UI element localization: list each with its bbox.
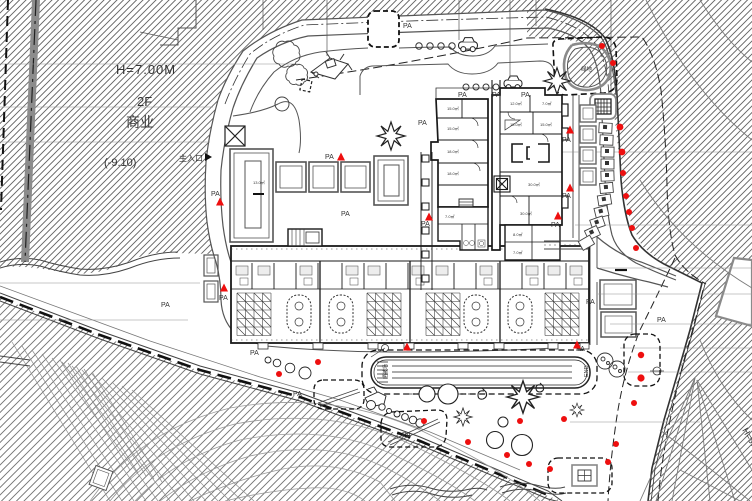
svg-text:7.0㎡: 7.0㎡ <box>542 100 552 106</box>
svg-text:PA: PA <box>325 154 334 161</box>
svg-text:PA: PA <box>250 350 259 357</box>
svg-text:PA: PA <box>586 299 595 306</box>
svg-text:18.0㎡: 18.0㎡ <box>447 148 459 154</box>
svg-text:PA: PA <box>219 295 228 302</box>
svg-text:2F: 2F <box>137 94 152 109</box>
svg-text:绿地: 绿地 <box>581 65 593 73</box>
svg-text:商业: 商业 <box>126 114 154 130</box>
svg-text:PA: PA <box>521 92 530 99</box>
svg-text:12.0㎡: 12.0㎡ <box>510 100 522 106</box>
svg-text:7.0㎡: 7.0㎡ <box>445 213 455 219</box>
svg-text:7.0㎡: 7.0㎡ <box>513 249 523 255</box>
svg-text:晒被场: 晒被场 <box>382 364 389 379</box>
svg-text:PA: PA <box>562 193 571 200</box>
svg-text:PA: PA <box>657 317 666 324</box>
svg-text:18.0㎡: 18.0㎡ <box>447 170 459 176</box>
svg-text:PA: PA <box>341 211 350 218</box>
svg-text:PA: PA <box>562 137 571 144</box>
svg-text:15.0㎡: 15.0㎡ <box>447 105 459 111</box>
svg-text:END: END <box>584 365 590 377</box>
svg-text:30.0㎡: 30.0㎡ <box>528 181 540 187</box>
svg-text:PA: PA <box>492 92 501 99</box>
svg-text:PA: PA <box>293 391 302 398</box>
svg-text:主入口: 主入口 <box>179 153 203 163</box>
svg-text:PA: PA <box>161 302 170 309</box>
svg-text:15.0㎡: 15.0㎡ <box>510 121 522 127</box>
svg-text:13.0㎡: 13.0㎡ <box>253 179 265 185</box>
svg-text:H=7.00M: H=7.00M <box>116 62 176 77</box>
svg-text:PA: PA <box>458 92 467 99</box>
svg-text:15.0㎡: 15.0㎡ <box>540 121 552 127</box>
svg-text:(-9.10): (-9.10) <box>104 157 136 169</box>
svg-text:PA: PA <box>551 222 560 229</box>
svg-text:8.0㎡: 8.0㎡ <box>513 231 523 237</box>
svg-text:30.0㎡: 30.0㎡ <box>520 210 532 216</box>
svg-text:PA: PA <box>421 221 430 228</box>
svg-text:PA: PA <box>403 23 412 30</box>
svg-text:PA: PA <box>211 191 220 198</box>
svg-text:15.0㎡: 15.0㎡ <box>447 125 459 131</box>
svg-text:PA: PA <box>418 120 427 127</box>
svg-text:PA: PA <box>402 432 411 439</box>
